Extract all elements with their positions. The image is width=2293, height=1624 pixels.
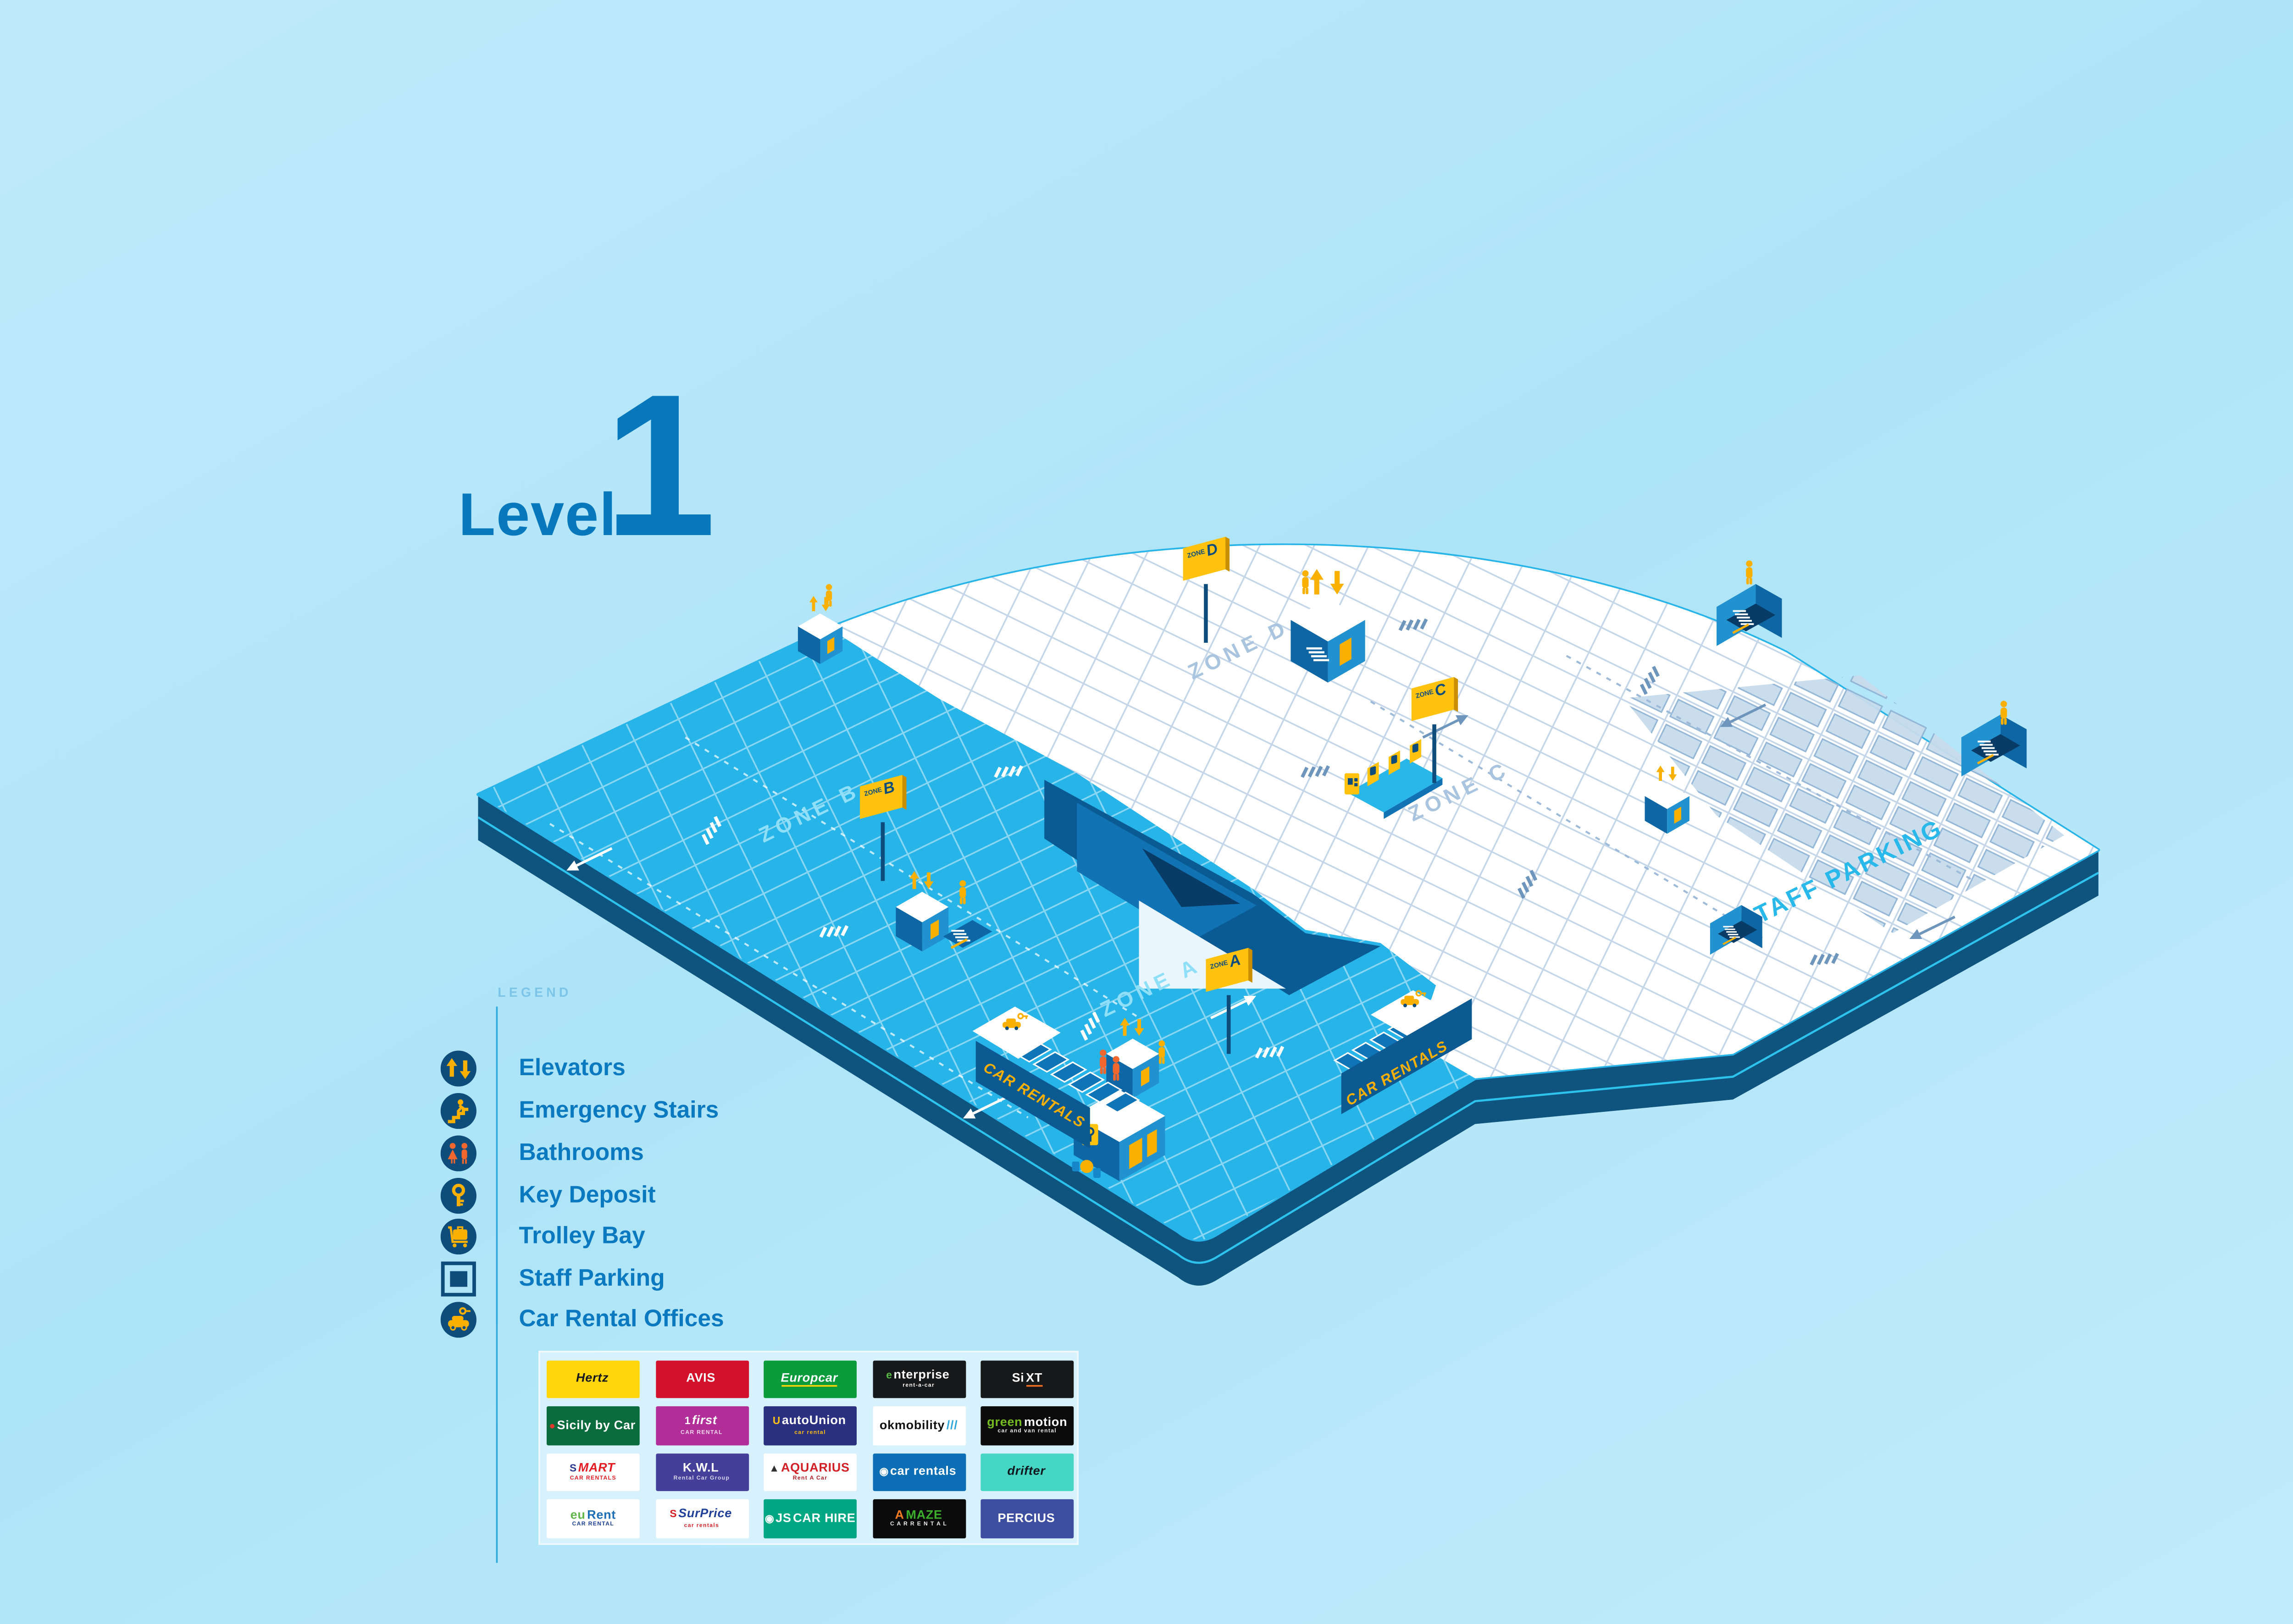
legend-label-elevators: Elevators (519, 1055, 625, 1082)
car-rental-offices-icon (441, 1302, 476, 1337)
trolley-bay-icon (441, 1219, 476, 1254)
legend-title: LEGEND (498, 985, 571, 1000)
logo-eurent: euRentCAR RENTAL (547, 1499, 640, 1538)
legend-label-key-deposit: Key Deposit (519, 1182, 655, 1208)
legend-divider (496, 1006, 498, 1563)
level-title-word: Level (459, 485, 617, 545)
logo-sixt: SiXT (980, 1360, 1074, 1398)
legend-item-key-deposit: Key Deposit (441, 1176, 476, 1215)
logo-enterprise: enterpriserent-a-car (872, 1360, 965, 1398)
logo-percius: PERCIUS (980, 1499, 1074, 1538)
elevator-top-left (798, 596, 842, 664)
logo-green-motion: greenmotioncar and van rental (980, 1406, 1074, 1445)
logo-smart-car-rentals: SMARTCAR RENTALS (547, 1453, 640, 1491)
elevators-icon (441, 1050, 476, 1086)
logo-drifter: drifter (980, 1453, 1074, 1491)
logo-hertz: Hertz (547, 1360, 640, 1398)
legend-label-trolley-bay: Trolley Bay (519, 1224, 645, 1250)
legend-item-car-rental-offices: Car Rental Offices (441, 1300, 476, 1339)
legend-item-trolley-bay: Trolley Bay (441, 1217, 476, 1256)
parking-map-illustration: ZONE B ZONE A ZONE D ZONE C STAFF PARKIN… (0, 0, 2293, 1624)
legend-label-car-rental-offices: Car Rental Offices (519, 1307, 724, 1333)
logo-amaze: AMAZEC A R R E N T A L (872, 1499, 965, 1538)
stairs-right-corner (1961, 714, 2027, 776)
logo-js-car-hire: ◉JSCAR HIRE (764, 1499, 857, 1538)
logo-ok-mobility: okmobility/// (872, 1406, 965, 1445)
staff-parking-icon (441, 1260, 476, 1296)
logo-first-car-rental: 1firstCAR RENTAL (655, 1406, 748, 1445)
poster-stage: ZONE B ZONE A ZONE D ZONE C STAFF PARKIN… (0, 0, 2293, 1624)
emergency-stairs-icon (441, 1093, 476, 1129)
level-title-number: 1 (604, 382, 716, 554)
bathrooms-icon (441, 1135, 476, 1171)
platform-floor (478, 545, 2099, 1240)
person-top-left (826, 584, 832, 607)
key-deposit-icon (441, 1177, 476, 1213)
logo-avis: AVIS (655, 1360, 748, 1398)
person-top-right (1746, 560, 1752, 585)
legend-item-elevators: Elevators (441, 1049, 476, 1088)
legend-item-bathrooms: Bathrooms (441, 1134, 476, 1173)
logo-auto-union: UautoUnioncar rental (764, 1406, 857, 1445)
logo-sicily-by-car: ●Sicily by Car (547, 1406, 640, 1445)
logo-car-rentals: ◉car rentals (872, 1453, 965, 1491)
legend-label-emergency-stairs: Emergency Stairs (519, 1098, 719, 1124)
legend-item-emergency-stairs: Emergency Stairs (441, 1091, 476, 1130)
logo-kwl: K.W.LRental Car Group (655, 1453, 748, 1491)
car-rental-brands-panel: Hertz AVIS Europcar enterpriserent-a-car… (538, 1351, 1079, 1545)
legend-label-staff-parking: Staff Parking (519, 1265, 665, 1291)
legend-label-bathrooms: Bathrooms (519, 1140, 643, 1166)
logo-aquarius: ▲AQUARIUSRent A Car (764, 1453, 857, 1491)
logo-surprice: SSurPricecar rentals (655, 1499, 748, 1538)
logo-europcar: Europcar (764, 1360, 857, 1398)
legend-item-staff-parking: Staff Parking (441, 1259, 476, 1298)
